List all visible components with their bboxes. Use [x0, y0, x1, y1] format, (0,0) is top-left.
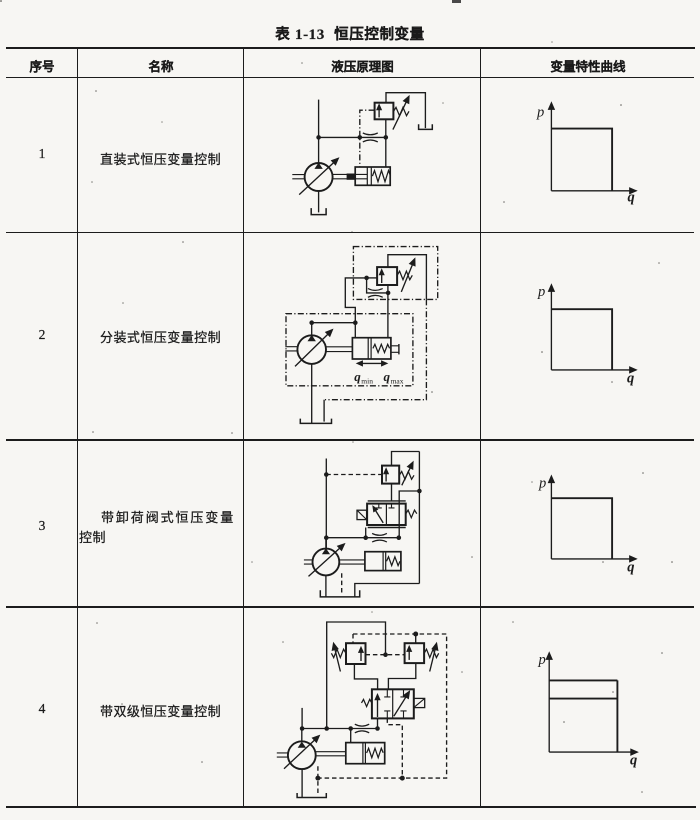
svg-text:q: q	[384, 369, 391, 384]
svg-text:min: min	[361, 376, 373, 385]
svg-text:q: q	[354, 369, 361, 384]
svg-text:q: q	[627, 371, 634, 387]
svg-text:q: q	[630, 753, 637, 769]
svg-text:q: q	[627, 560, 634, 576]
svg-text:p: p	[536, 105, 544, 121]
svg-text:p: p	[538, 476, 546, 492]
svg-text:max: max	[391, 376, 404, 385]
svg-text:p: p	[537, 284, 545, 300]
svg-text:p: p	[538, 652, 546, 668]
svg-text:q: q	[628, 190, 635, 206]
